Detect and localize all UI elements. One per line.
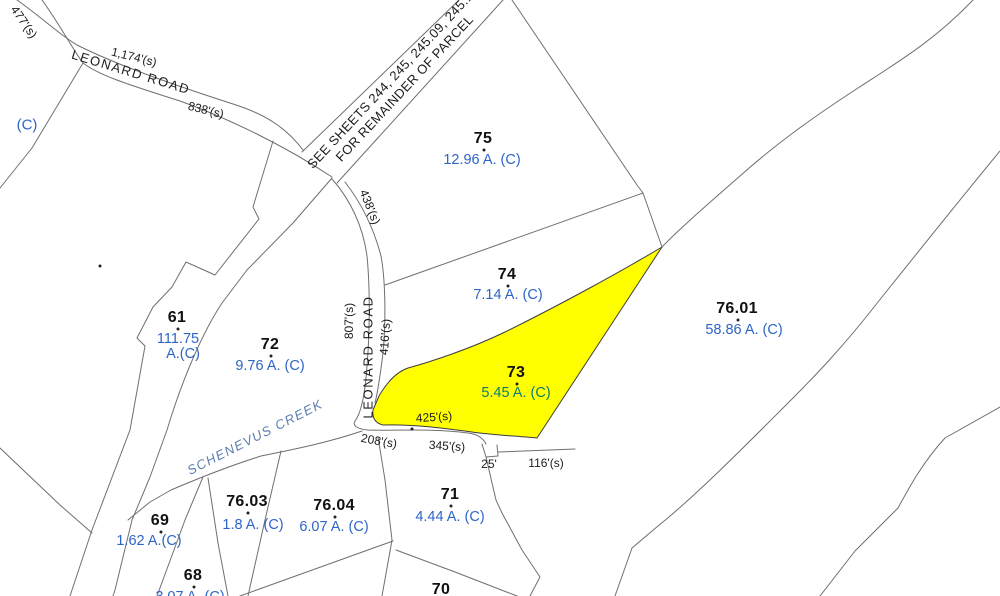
distance-label: 425'(s) bbox=[415, 409, 452, 425]
parcel-centroid-dot-71 bbox=[450, 505, 453, 508]
parcel-number-71[interactable]: 71 bbox=[441, 486, 459, 504]
parcel-73-highlight[interactable] bbox=[373, 247, 662, 438]
parcel-acreage2-61: A.(C) bbox=[166, 346, 200, 362]
parcel-boundary bbox=[0, 63, 83, 188]
parcel-number-74[interactable]: 74 bbox=[498, 266, 516, 284]
parcel-acreage-76.01: 58.86 A. (C) bbox=[705, 322, 782, 338]
map-sheet-corner-label: (C) bbox=[17, 117, 38, 134]
parcel-number-76.03[interactable]: 76.03 bbox=[226, 493, 268, 511]
parcel-number-72[interactable]: 72 bbox=[261, 336, 279, 354]
parcel-acreage-76.03: 1.8 A. (C) bbox=[222, 517, 283, 533]
parcel-acreage-73: 5.45 A. (C) bbox=[481, 385, 550, 401]
survey-point-marker bbox=[99, 265, 102, 268]
distance-label: 416'(s) bbox=[377, 318, 393, 355]
parcel-number-73[interactable]: 73 bbox=[507, 364, 525, 382]
distance-label: 807'(s) bbox=[342, 303, 356, 339]
parcel-number-68[interactable]: 68 bbox=[184, 567, 202, 585]
parcel-centroid-dot-76.03 bbox=[247, 512, 250, 515]
parcel-number-69[interactable]: 69 bbox=[151, 512, 169, 530]
parcel-boundary bbox=[486, 457, 540, 596]
parcel-number-76.04[interactable]: 76.04 bbox=[313, 497, 355, 515]
parcel-boundary bbox=[208, 478, 228, 596]
parcel-boundary bbox=[396, 550, 517, 596]
parcel-boundary bbox=[0, 448, 92, 533]
highlight-group bbox=[373, 247, 662, 438]
parcel-boundary bbox=[662, 0, 973, 247]
parcel-number-75[interactable]: 75 bbox=[474, 130, 492, 148]
parcel-boundary bbox=[240, 541, 393, 596]
parcel-number-70[interactable]: 70 bbox=[432, 581, 450, 596]
tie-line bbox=[498, 449, 575, 452]
parcel-boundary bbox=[615, 151, 1000, 596]
survey-point-marker bbox=[411, 428, 414, 431]
parcel-acreage-76.04: 6.07 A. (C) bbox=[299, 519, 368, 535]
distance-label: 25' bbox=[481, 457, 497, 471]
parcel-boundary bbox=[512, 0, 662, 247]
distance-label: 116'(s) bbox=[528, 456, 563, 470]
parcel-acreage-69: 1.62 A.(C) bbox=[116, 533, 181, 549]
parcel-number-61[interactable]: 61 bbox=[168, 309, 186, 327]
parcel-acreage-61: 111.75 bbox=[157, 331, 199, 347]
parcel-boundary bbox=[820, 407, 1000, 596]
parcel-boundary bbox=[482, 444, 498, 457]
parcel-acreage-68: 3.07 A. (C) bbox=[155, 589, 224, 596]
parcel-acreage-72: 9.76 A. (C) bbox=[235, 358, 304, 374]
parcel-acreage-71: 4.44 A. (C) bbox=[415, 509, 484, 525]
distance-label: 345'(s) bbox=[428, 438, 465, 454]
parcel-number-76.01[interactable]: 76.01 bbox=[716, 300, 758, 318]
parcel-acreage-74: 7.14 A. (C) bbox=[473, 287, 542, 303]
parcel-boundary bbox=[378, 437, 392, 596]
parcel-map-canvas[interactable]: 7512.96 A. (C)747.14 A. (C)735.45 A. (C)… bbox=[0, 0, 1000, 596]
parcel-acreage-75: 12.96 A. (C) bbox=[443, 152, 520, 168]
road-label-leonard-road: LEONARD ROAD bbox=[361, 295, 376, 418]
